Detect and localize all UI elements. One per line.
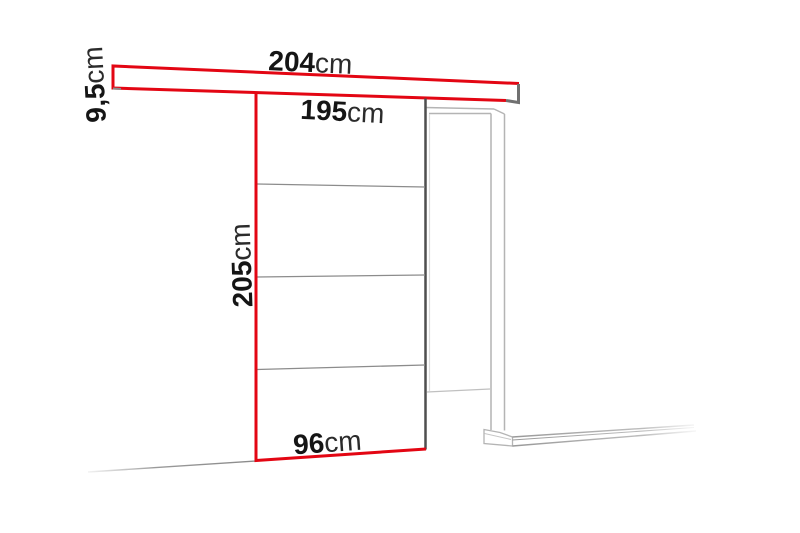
door-groove-2 bbox=[257, 275, 425, 277]
door-top-width-value: 195 bbox=[300, 94, 348, 127]
door-height-value: 205 bbox=[226, 260, 259, 308]
label-door-bottom-width: 96cm bbox=[292, 425, 362, 461]
door-groove-3 bbox=[257, 365, 425, 370]
frame-head-top-line bbox=[425, 108, 494, 110]
skirting-top-line bbox=[513, 425, 695, 437]
dimension-diagram: 204cm 9,5cm 195cm 205cm 96cm bbox=[0, 0, 800, 533]
door-top-width-unit: cm bbox=[346, 96, 385, 129]
door-bottom-width-unit: cm bbox=[323, 425, 362, 459]
label-door-top-width: 195cm bbox=[300, 94, 386, 129]
rail-right-end-cap bbox=[506, 84, 519, 103]
door-bottom-width-value: 96 bbox=[292, 427, 325, 460]
label-rail-height: 9,5cm bbox=[77, 46, 112, 124]
rail-width-unit: cm bbox=[314, 47, 353, 80]
opening-floor-line bbox=[427, 389, 490, 392]
frame-plinth-block bbox=[484, 430, 513, 447]
frame-head-corner-line bbox=[494, 109, 505, 114]
door-groove-1 bbox=[257, 184, 425, 187]
door-frame bbox=[425, 108, 696, 447]
label-rail-width: 204cm bbox=[268, 45, 353, 80]
diagram-canvas: 204cm 9,5cm 195cm 205cm 96cm bbox=[0, 0, 800, 533]
label-door-height: 205cm bbox=[225, 223, 259, 308]
rail-width-value: 204 bbox=[268, 45, 316, 78]
sliding-door-panel bbox=[256, 93, 426, 461]
door-height-unit: cm bbox=[225, 223, 257, 261]
rail-height-value: 9,5 bbox=[79, 83, 112, 124]
floor-line-left bbox=[88, 461, 256, 472]
dimension-labels: 204cm 9,5cm 195cm 205cm 96cm bbox=[77, 45, 385, 460]
rail-height-unit: cm bbox=[77, 46, 110, 85]
rail-left-end-mark bbox=[113, 89, 121, 90]
